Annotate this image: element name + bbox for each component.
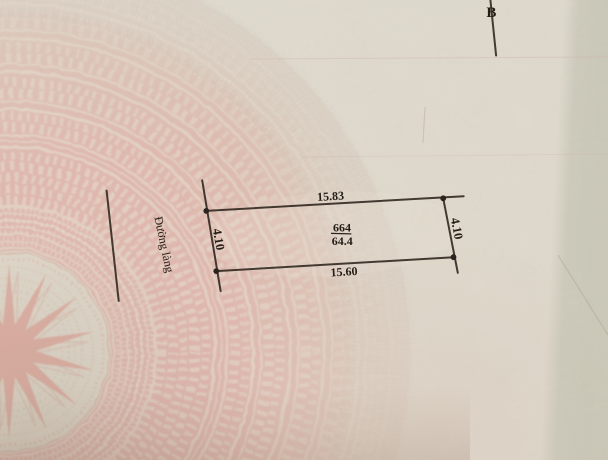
svg-text:664: 664 <box>333 221 351 235</box>
svg-text:15.60: 15.60 <box>330 264 358 280</box>
svg-text:15.83: 15.83 <box>317 188 345 203</box>
svg-text:B: B <box>486 5 496 21</box>
svg-text:64.4: 64.4 <box>332 234 353 248</box>
